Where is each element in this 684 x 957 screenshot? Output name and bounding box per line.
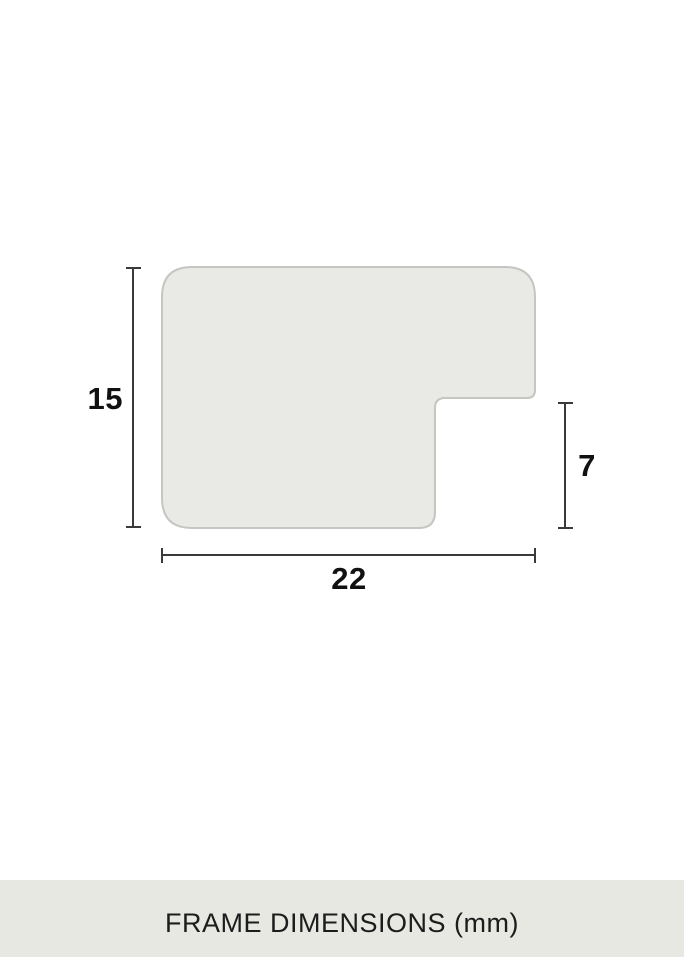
depth-dimension-line [558,403,573,528]
depth-dimension-label: 7 [572,450,602,481]
height-dimension-label: 15 [70,383,123,414]
frame-profile-shape [162,267,535,528]
height-dimension-line [126,268,141,527]
footer-caption: FRAME DIMENSIONS (mm) [165,908,519,939]
page: 15 22 7 FRAME DIMENSIONS (mm) [0,0,684,957]
footer-bar: FRAME DIMENSIONS (mm) [0,880,684,957]
profile-drawing [0,0,684,880]
frame-profile-diagram: 15 22 7 [0,0,684,880]
width-dimension-label: 22 [299,563,399,594]
